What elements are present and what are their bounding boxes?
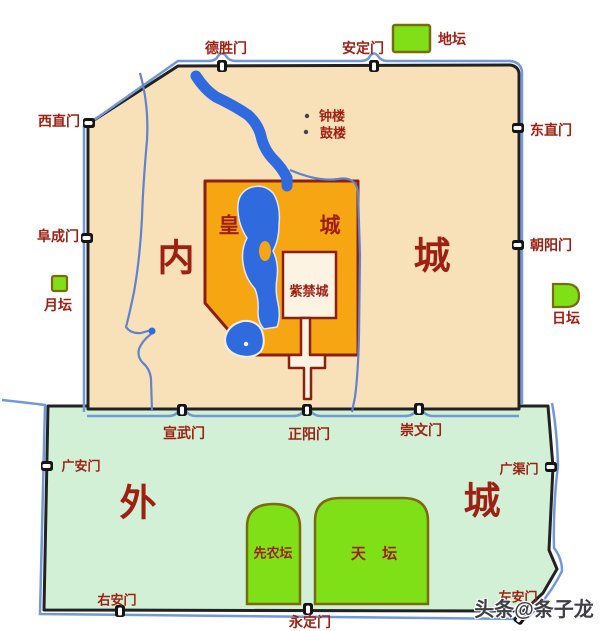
gate-xizhimen-label: 西直门 <box>38 114 80 128</box>
gate-chongwenmen-label: 崇文门 <box>400 423 442 437</box>
outer-city-label-left: 外 <box>120 485 157 522</box>
ditan-label: 地坛 <box>438 32 466 46</box>
imperial-city-label-right: 城 <box>320 216 341 237</box>
gate-fuchengmen-label: 阜成门 <box>37 229 79 243</box>
gate-dongzhimen-label: 东直门 <box>530 123 572 137</box>
xiannongtan-label: 先农坛 <box>253 547 292 560</box>
tiantan-label: 天 坛 <box>351 547 403 562</box>
gate-guangqumen-label: 广渠门 <box>499 463 538 476</box>
gate-xuanwumen-label: 宣武门 <box>163 426 205 440</box>
yuetan-label: 月坛 <box>44 298 72 312</box>
label-layer: 德胜门 安定门 地坛 西直门 东直门 阜成门 朝阳门 月坛 日坛 钟楼 鼓楼 内… <box>0 0 600 631</box>
ritan-label: 日坛 <box>552 311 580 325</box>
bell-tower-label: 钟楼 <box>319 110 345 123</box>
inner-city-label-right: 城 <box>414 238 451 275</box>
gate-chaoyangmen-label: 朝阳门 <box>530 238 572 252</box>
gate-zhengyangmen-label: 正阳门 <box>288 427 330 441</box>
gate-youanmen-label: 右安门 <box>97 594 136 607</box>
drum-tower-label: 鼓楼 <box>320 127 346 140</box>
beijing-old-city-map: 德胜门 安定门 地坛 西直门 东直门 阜成门 朝阳门 月坛 日坛 钟楼 鼓楼 内… <box>0 0 600 631</box>
outer-city-label-right: 城 <box>464 483 501 520</box>
inner-city-label-left: 内 <box>158 240 195 277</box>
gate-yongdingmen-label: 永定门 <box>289 615 331 629</box>
gate-andingmen-label: 安定门 <box>342 41 384 55</box>
forbidden-city-label: 紫禁城 <box>289 285 328 298</box>
gate-guanganmen-label: 广安门 <box>61 460 100 473</box>
imperial-city-label-left: 皇 <box>219 216 240 237</box>
watermark: 头条@条子龙 <box>474 600 594 620</box>
gate-deshengmen-label: 德胜门 <box>205 41 247 55</box>
